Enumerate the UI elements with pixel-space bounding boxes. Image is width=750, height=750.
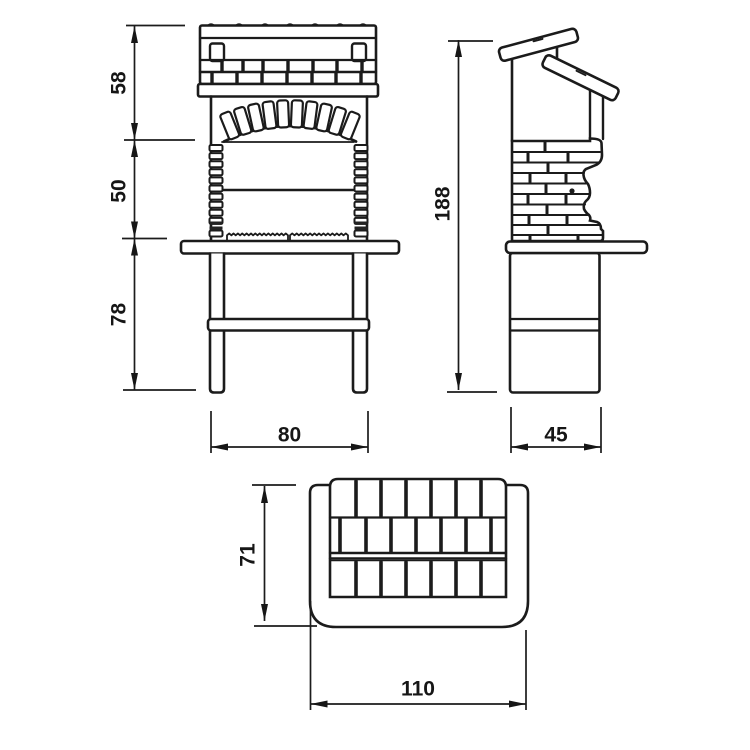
svg-text:45: 45: [544, 424, 568, 447]
svg-text:50: 50: [108, 179, 131, 202]
svg-text:110: 110: [401, 678, 435, 701]
svg-text:80: 80: [278, 424, 301, 447]
svg-text:188: 188: [432, 186, 455, 221]
svg-text:78: 78: [108, 303, 131, 327]
svg-text:71: 71: [237, 543, 260, 567]
svg-text:58: 58: [108, 71, 131, 95]
